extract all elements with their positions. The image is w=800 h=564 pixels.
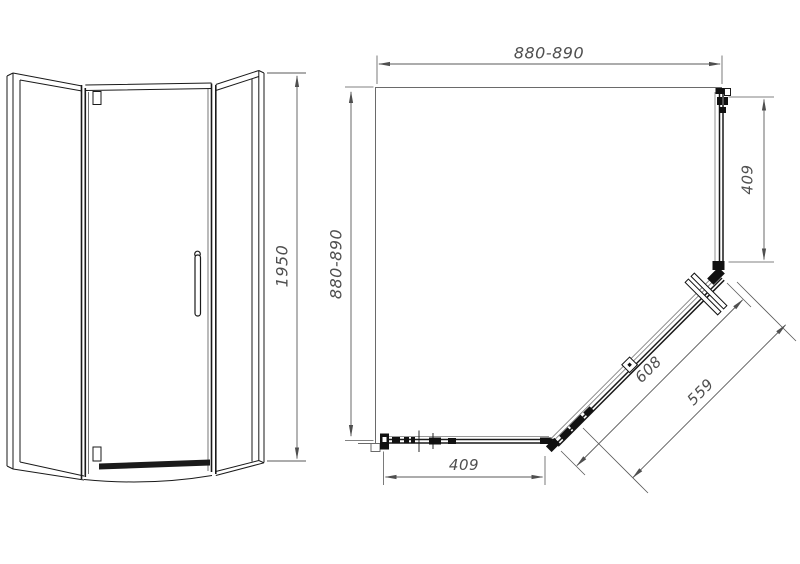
technical-drawing-canvas: 1950 [0,0,800,564]
front-elevation-view [7,71,264,482]
front-wall-bracket-bottom [93,447,101,461]
front-wall-bracket-top [93,92,101,105]
dim-label-plan-top-width: 880-890 [514,44,584,63]
plan-diagonal-door [546,267,727,452]
plan-bottom-panel [380,431,556,453]
dim-label-door-glass-width: 559 [683,375,717,409]
plan-bottom-panel-hardware [380,434,552,450]
front-left-panel [7,73,84,480]
plan-right-panel-wall-profile [716,88,729,113]
plan-right-panel [713,88,731,270]
plan-walls [358,88,722,452]
shower-enclosure-drawing: 1950 [0,0,800,564]
plan-view [345,56,796,494]
door-handle [195,251,201,316]
dim-label-right-panel: 409 [739,164,757,194]
front-right-panel [216,71,264,476]
front-threshold [84,460,212,482]
dim-label-bottom-panel: 409 [449,456,479,474]
dim-label-plan-left-depth: 880-890 [327,229,346,299]
dim-label-front-height: 1950 [273,245,292,288]
